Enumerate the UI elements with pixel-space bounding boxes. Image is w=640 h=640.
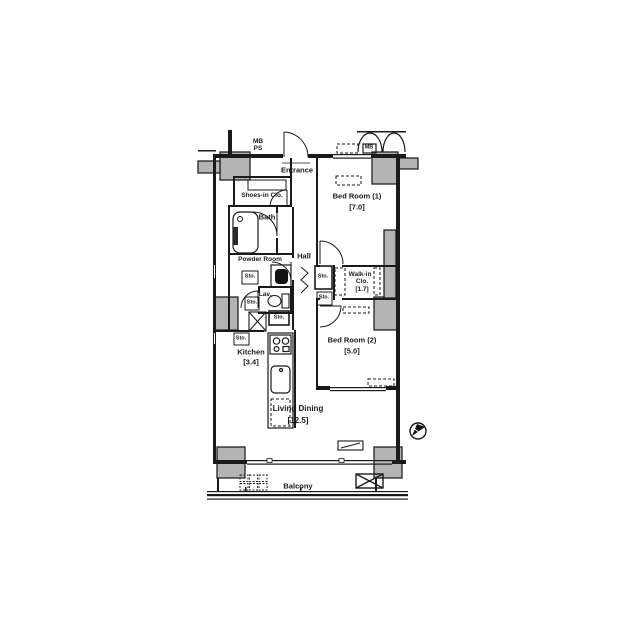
sink-icon xyxy=(271,366,290,393)
room-label-balcony: Balcony xyxy=(283,482,312,490)
washing-machine-icon xyxy=(249,312,266,331)
room-size-living-dining: [12.5] xyxy=(288,417,309,425)
room-label-lavatory: Lav. xyxy=(259,292,272,299)
folding-door-icon xyxy=(301,267,308,293)
room-label-powder-room: Powder Room xyxy=(238,257,282,264)
storage-label: Sto. xyxy=(245,274,255,280)
storage-label: Sto. xyxy=(319,295,329,301)
room-label-kitchen: Kitchen xyxy=(237,348,265,356)
room-label-bedroom1: Bed Room (1) xyxy=(333,192,382,200)
washbasin-icon xyxy=(271,265,291,287)
pipe-space-label: PS xyxy=(254,146,263,153)
ac-unit-icon xyxy=(338,441,363,450)
floorplan-page: MB PS MB Entrance Shoes-in Clo. Bath Pow… xyxy=(0,0,640,640)
floorplan-drawing xyxy=(0,0,640,640)
room-size-bedroom2: [5.0] xyxy=(344,347,359,355)
compass-icon xyxy=(410,423,426,439)
room-label-hall: Hall xyxy=(297,252,311,260)
kitchen-counter xyxy=(268,333,293,428)
storage-label: Sto. xyxy=(236,336,246,342)
room-label-walkin-closet: Clo. xyxy=(356,279,368,286)
room-label-bedroom2: Bed Room (2) xyxy=(328,336,377,344)
storage-label: Sto. xyxy=(318,274,328,280)
storage-label: Sto. xyxy=(274,315,284,321)
meter-box-label: MB xyxy=(365,145,374,151)
stove-icon xyxy=(270,335,291,354)
storage-label: Sto. xyxy=(247,300,257,306)
bathtub-icon xyxy=(233,212,258,253)
evacuation-hatch-icon xyxy=(356,474,383,488)
room-label-living-dining: Living Dining xyxy=(273,405,324,413)
room-label-shoes-closet: Shoes-in Clo. xyxy=(241,193,283,200)
structural-columns xyxy=(198,152,418,478)
room-size-walkin-closet: [1.7] xyxy=(355,287,368,294)
room-size-bedroom1: [7.0] xyxy=(349,203,364,211)
room-label-entrance: Entrance xyxy=(281,166,313,174)
room-size-kitchen: [3.4] xyxy=(243,358,258,366)
room-label-bath: Bath xyxy=(259,213,276,221)
